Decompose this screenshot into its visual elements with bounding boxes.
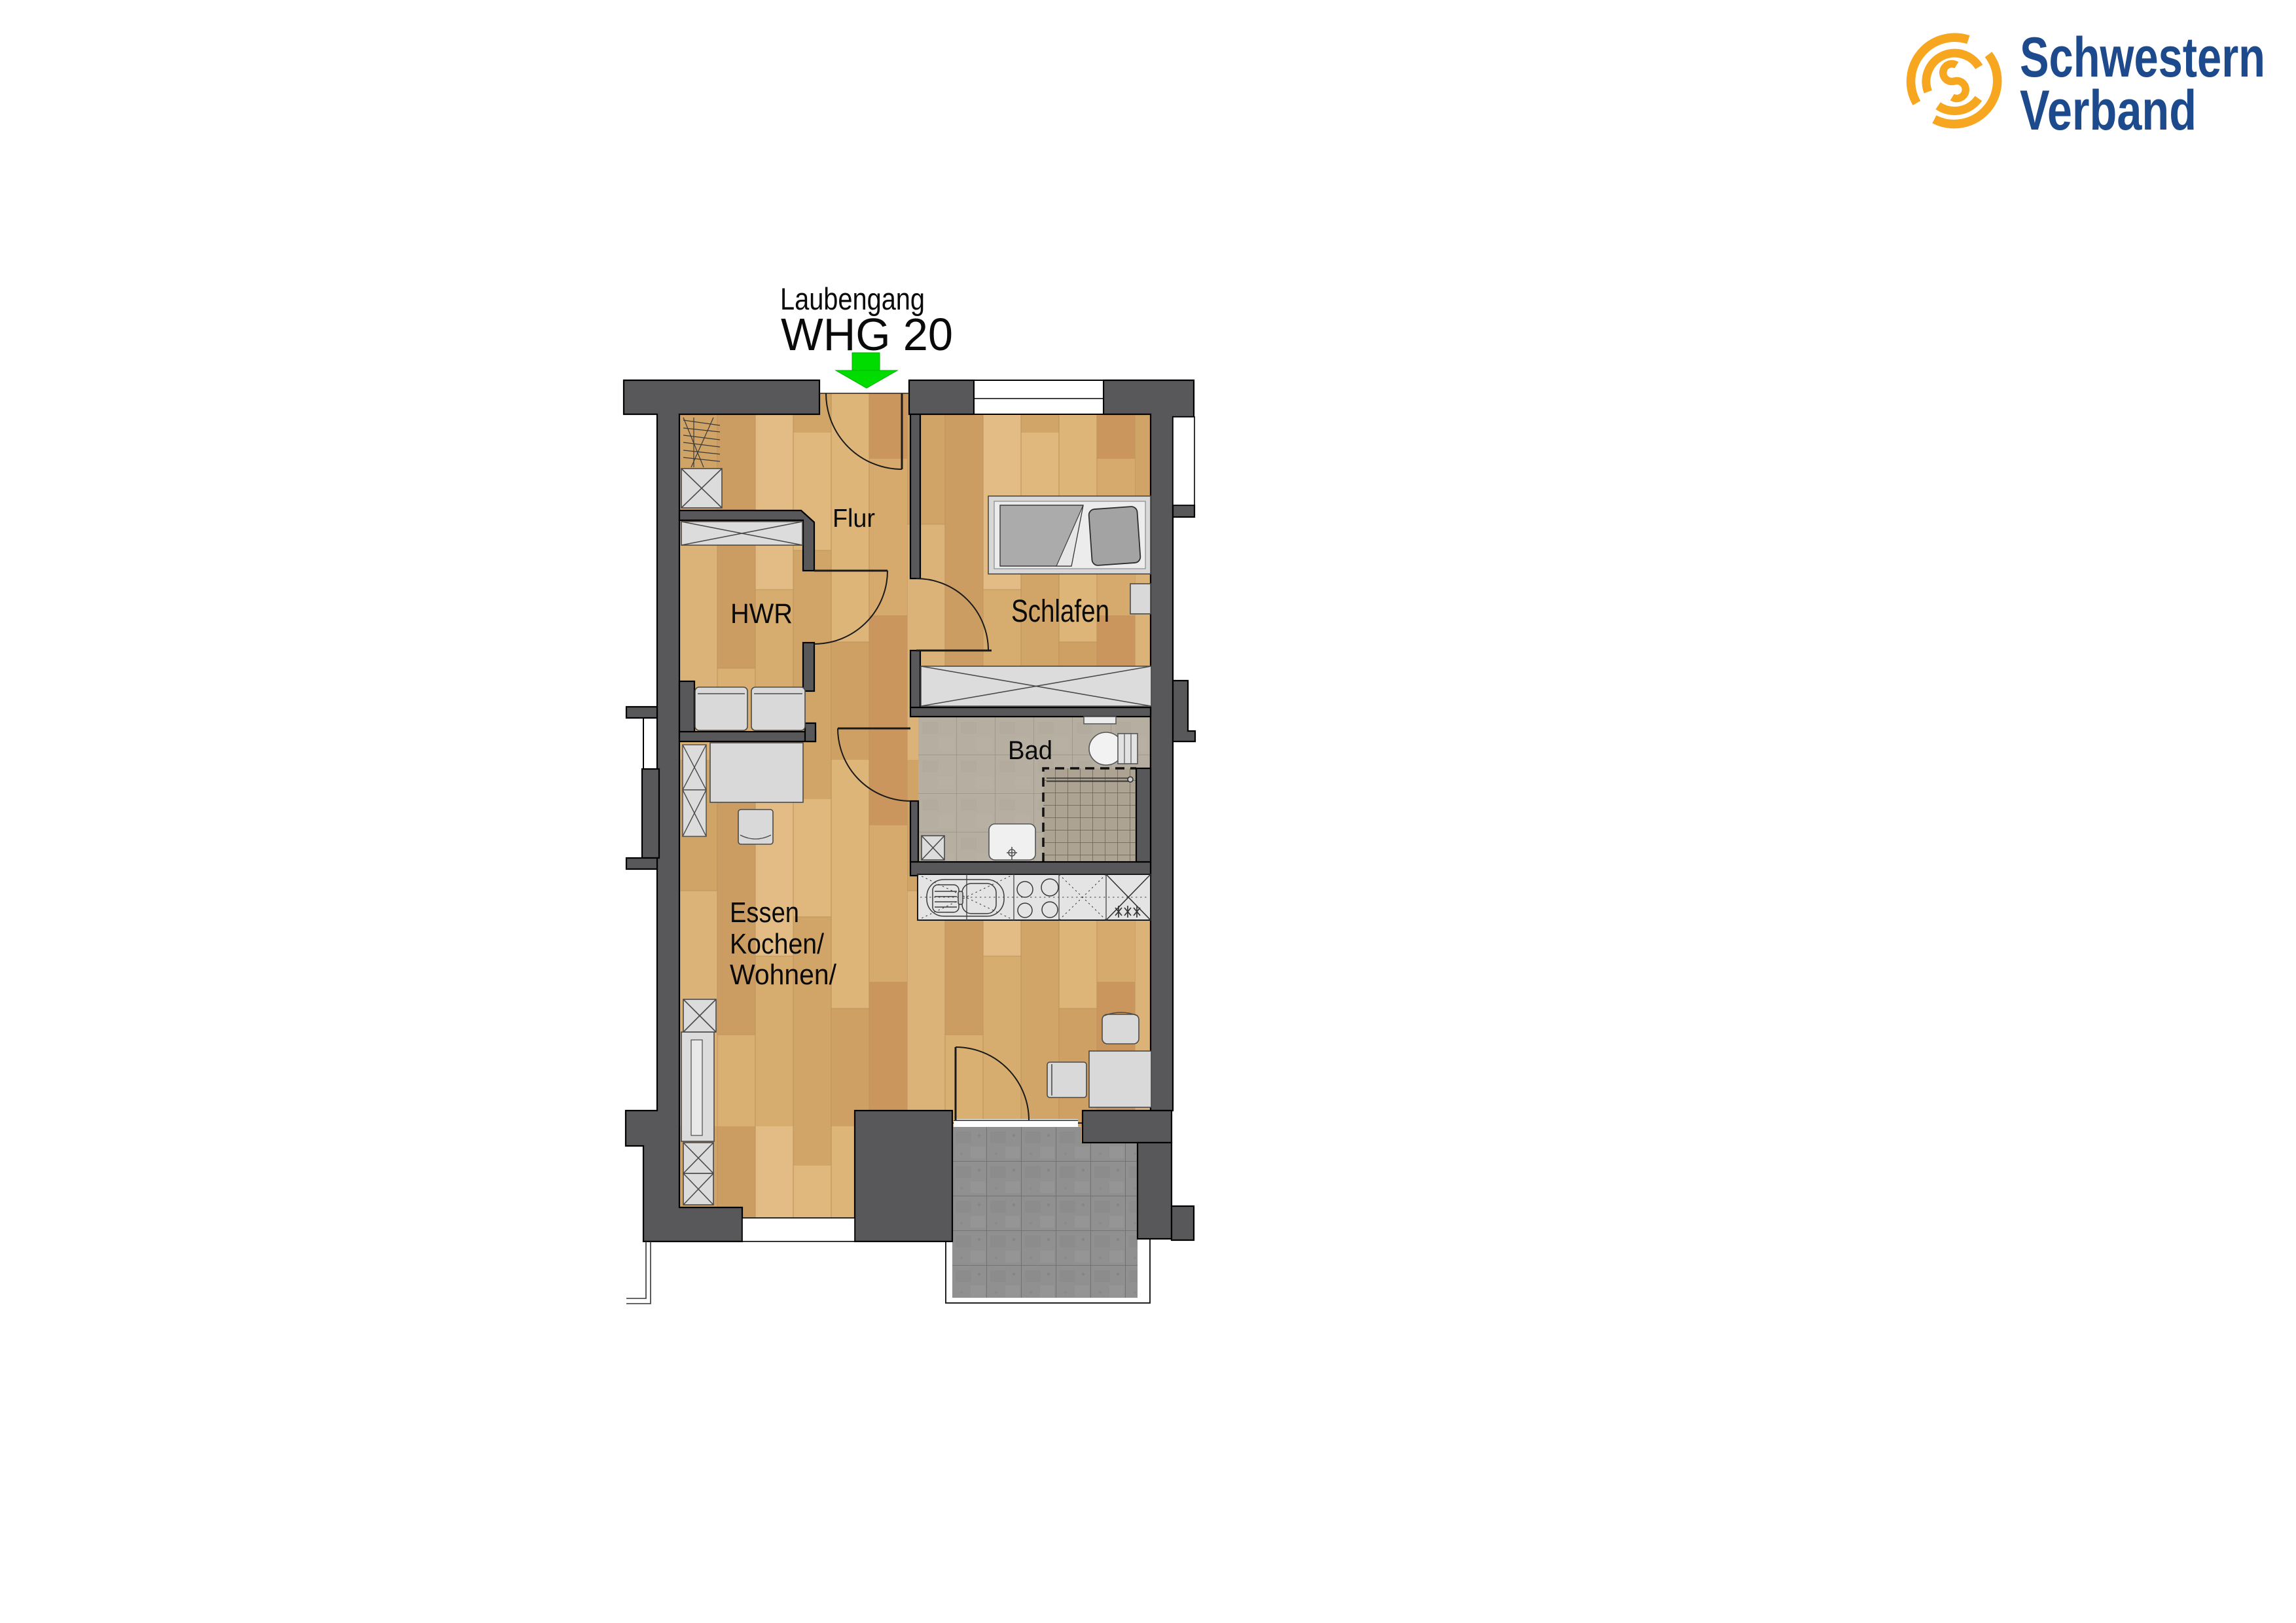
svg-text:WHG 20: WHG 20 (781, 309, 953, 360)
svg-text:HWR: HWR (730, 598, 793, 630)
svg-text:Essen: Essen (730, 897, 799, 929)
svg-text:Schlafen: Schlafen (1011, 594, 1109, 629)
svg-text:Flur: Flur (833, 505, 875, 533)
svg-text:Wohnen/: Wohnen/ (730, 959, 837, 991)
svg-text:Verband: Verband (2020, 79, 2197, 142)
svg-text:Kochen/: Kochen/ (730, 928, 825, 960)
svg-text:Bad: Bad (1008, 736, 1052, 765)
